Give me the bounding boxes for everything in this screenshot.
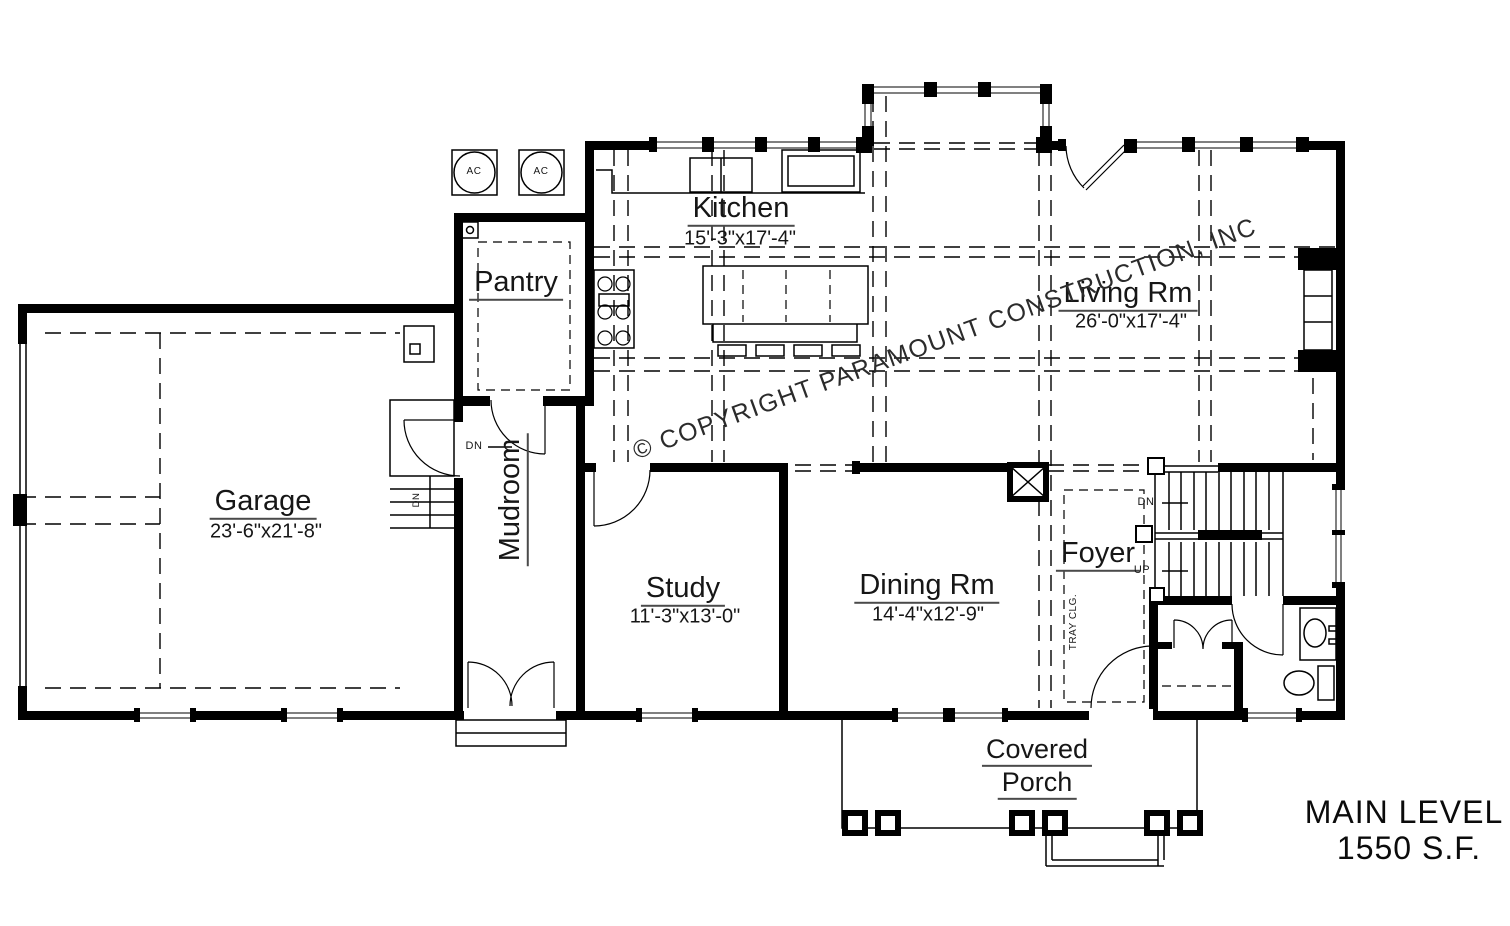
mudroom-stoop	[456, 720, 566, 746]
covered-porch-label-line1: Covered	[982, 735, 1092, 767]
floor-plan-drawing	[0, 0, 1510, 926]
living-room-dims: 26'-0"x17'-4"	[1075, 312, 1187, 333]
study-dims: 11'-3"x13'-0"	[630, 607, 740, 628]
garage-label: Garage	[210, 486, 317, 520]
utility-panel	[404, 222, 478, 362]
plan-title: MAIN LEVEL	[1305, 796, 1504, 830]
kitchen-island	[703, 266, 868, 356]
mudroom-label: Mudroom	[495, 434, 529, 567]
toilet-tank-icon	[1318, 666, 1334, 700]
hose-bib-icon	[467, 227, 474, 234]
ac-unit-label: AC	[534, 167, 549, 178]
refrigerator	[782, 150, 860, 192]
dining-room-dims: 14'-4"x12'-9"	[872, 605, 984, 626]
toilet-bowl-icon	[1284, 671, 1314, 695]
kitchen-counter	[596, 170, 865, 193]
pantry-label: Pantry	[469, 267, 563, 301]
fireplace	[1304, 270, 1332, 350]
faucet-icon	[1329, 626, 1336, 631]
kitchen-sink	[690, 158, 752, 192]
dn-mudroom-note: DN	[466, 441, 483, 453]
garage-dims: 23'-6"x21'-8"	[210, 522, 322, 543]
floor-plan: Kitchen 15'-3"x17'-4" Living Rm 26'-0"x1…	[0, 0, 1510, 926]
sink-icon	[1304, 619, 1326, 647]
tray-ceiling-note: TRAY CLG.	[1069, 594, 1080, 650]
covered-porch-label-line2: Porch	[998, 768, 1077, 800]
dn-stairs-note: DN	[1138, 497, 1155, 509]
garage-steps	[390, 400, 454, 528]
dn-garage-steps-note: DN	[412, 493, 422, 508]
study-label: Study	[641, 573, 725, 607]
ac-unit-label: AC	[467, 167, 482, 178]
kitchen-label: Kitchen	[688, 193, 795, 227]
up-stairs-note: UP	[1134, 565, 1150, 577]
dining-room-label: Dining Rm	[854, 570, 999, 604]
plan-area: 1550 S.F.	[1337, 832, 1481, 866]
newel-posts	[1136, 458, 1164, 602]
kitchen-dims: 15'-3"x17'-4"	[684, 229, 796, 250]
structural-column	[1010, 465, 1046, 499]
porch-columns	[842, 810, 1203, 836]
foyer-label: Foyer	[1056, 538, 1140, 572]
